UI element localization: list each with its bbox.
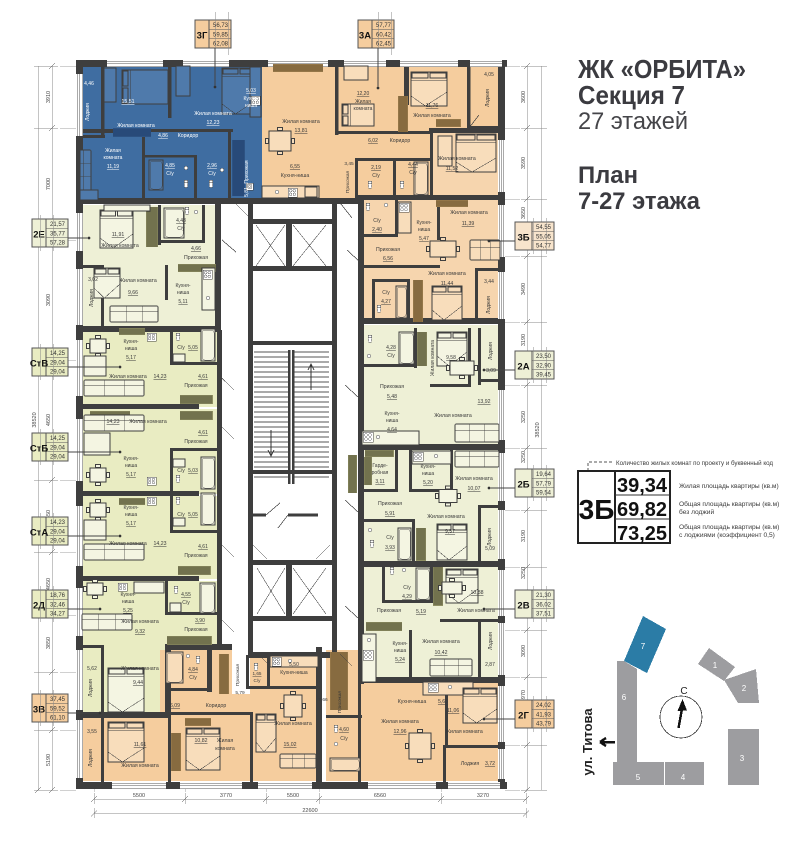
svg-text:3250: 3250 — [521, 411, 527, 423]
svg-text:15,02: 15,02 — [284, 742, 297, 748]
svg-text:Лоджия: Лоджия — [88, 749, 94, 767]
svg-text:Жилая комната: Жилая комната — [282, 119, 320, 125]
svg-text:62,45: 62,45 — [376, 42, 392, 48]
svg-text:ул. Титова: ул. Титова — [580, 708, 595, 776]
svg-text:Коридор: Коридор — [390, 138, 411, 144]
svg-text:С/у: С/у — [409, 170, 417, 176]
svg-text:С/у: С/у — [403, 585, 411, 591]
svg-text:3250: 3250 — [521, 567, 527, 579]
svg-text:3,72: 3,72 — [485, 761, 495, 767]
svg-text:32,90: 32,90 — [536, 363, 552, 369]
svg-text:5: 5 — [636, 773, 641, 782]
svg-text:5190: 5190 — [46, 754, 52, 766]
svg-text:29,04: 29,04 — [50, 370, 66, 376]
svg-text:Жилая: Жилая — [217, 738, 234, 744]
svg-text:14,23: 14,23 — [154, 374, 167, 380]
svg-text:ниша: ниша — [125, 463, 138, 469]
svg-text:Жилая: Жилая — [355, 99, 371, 105]
svg-text:6,02: 6,02 — [368, 138, 378, 144]
svg-text:Прихожая: Прихожая — [345, 170, 351, 193]
svg-text:2Г: 2Г — [518, 711, 529, 722]
svg-text:5,03: 5,03 — [188, 468, 198, 474]
svg-text:Лоджия: Лоджия — [85, 103, 91, 121]
svg-text:Жилая комната: Жилая комната — [117, 123, 155, 129]
svg-text:комната: комната — [354, 106, 373, 112]
svg-text:3,55: 3,55 — [87, 729, 97, 735]
svg-text:61,10: 61,10 — [50, 716, 66, 722]
svg-text:14,25: 14,25 — [50, 436, 66, 442]
svg-text:73,25: 73,25 — [617, 523, 667, 545]
svg-text:6,56: 6,56 — [383, 256, 393, 262]
svg-text:Кухня-: Кухня- — [123, 456, 138, 462]
svg-text:Кухня-: Кухня- — [392, 641, 407, 647]
svg-text:4,29: 4,29 — [402, 594, 412, 600]
svg-text:Жилая: Жилая — [105, 148, 121, 154]
svg-text:Лоджия: Лоджия — [89, 289, 95, 307]
svg-text:34,27: 34,27 — [50, 612, 66, 618]
svg-text:Кухня-: Кухня- — [123, 505, 138, 511]
svg-text:5,11: 5,11 — [178, 299, 188, 305]
svg-text:38520: 38520 — [32, 412, 38, 427]
svg-text:ниша: ниша — [125, 346, 138, 352]
svg-text:С/у: С/у — [340, 736, 348, 742]
svg-text:5,50: 5,50 — [289, 662, 299, 668]
svg-text:39,34: 39,34 — [617, 475, 668, 497]
svg-text:5,91: 5,91 — [385, 511, 395, 517]
svg-text:12,96: 12,96 — [394, 729, 407, 735]
svg-text:13,92: 13,92 — [478, 399, 491, 405]
svg-text:3850: 3850 — [46, 637, 52, 649]
svg-text:4,60: 4,60 — [339, 727, 349, 733]
svg-text:Жилая комната: Жилая комната — [121, 619, 159, 625]
svg-text:с лоджиями (коэффициент 0,5): с лоджиями (коэффициент 0,5) — [679, 532, 775, 539]
svg-text:4,05: 4,05 — [484, 72, 494, 78]
svg-text:Секция 7: Секция 7 — [578, 80, 685, 110]
svg-text:3,45: 3,45 — [344, 161, 354, 167]
svg-text:5,81: 5,81 — [244, 187, 250, 197]
svg-text:27 этажей: 27 этажей — [578, 108, 688, 135]
svg-text:2Д: 2Д — [33, 601, 45, 612]
svg-text:15,51: 15,51 — [122, 99, 135, 105]
svg-text:41,93: 41,93 — [536, 712, 552, 718]
svg-text:Кухня-: Кухня- — [420, 464, 435, 470]
svg-text:Жилая комната: Жилая комната — [450, 210, 488, 216]
svg-text:11,19: 11,19 — [107, 164, 119, 170]
svg-text:14,23: 14,23 — [50, 520, 66, 526]
svg-text:3490: 3490 — [521, 283, 527, 295]
svg-text:21,57: 21,57 — [50, 222, 66, 228]
svg-text:План: План — [578, 162, 638, 189]
svg-text:4,66: 4,66 — [191, 246, 201, 252]
svg-text:С/у: С/у — [177, 345, 185, 351]
svg-text:Кухня-: Кухня- — [384, 411, 399, 417]
svg-text:СтБ: СтБ — [30, 444, 49, 455]
svg-text:11,91: 11,91 — [112, 232, 125, 238]
svg-text:4,44: 4,44 — [408, 162, 418, 168]
svg-text:Жилая комната: Жилая комната — [121, 763, 159, 769]
svg-text:57,77: 57,77 — [376, 23, 392, 29]
svg-text:Жилая комната: Жилая комната — [119, 278, 157, 284]
svg-text:3,11: 3,11 — [375, 479, 385, 485]
svg-text:23,50: 23,50 — [536, 354, 552, 360]
svg-text:4650: 4650 — [46, 578, 52, 590]
svg-text:3Б: 3Б — [517, 233, 529, 244]
svg-text:С/у: С/у — [208, 171, 216, 177]
svg-text:59,52: 59,52 — [50, 706, 66, 712]
svg-text:Кухня-: Кухня- — [120, 592, 135, 598]
svg-text:С: С — [680, 686, 687, 697]
svg-text:Лоджия: Лоджия — [488, 632, 494, 650]
svg-text:Кухня-ниша: Кухня-ниша — [280, 670, 308, 676]
svg-text:5,17: 5,17 — [126, 521, 136, 527]
svg-text:Кухня-ниша: Кухня-ниша — [398, 699, 427, 705]
svg-text:С/у: С/у — [373, 218, 381, 224]
svg-text:7-27 этажа: 7-27 этажа — [578, 188, 701, 215]
svg-text:24,02: 24,02 — [536, 703, 552, 709]
svg-text:3Г: 3Г — [197, 31, 208, 42]
svg-text:3090: 3090 — [46, 294, 52, 306]
svg-text:2В: 2В — [517, 601, 529, 612]
svg-text:Жилая комната: Жилая комната — [101, 243, 139, 249]
svg-text:5,09: 5,09 — [485, 546, 495, 552]
svg-text:14,23: 14,23 — [107, 419, 120, 425]
svg-text:5,20: 5,20 — [423, 480, 433, 486]
svg-text:5,17: 5,17 — [126, 472, 136, 478]
svg-text:36,02: 36,02 — [536, 602, 552, 608]
svg-text:Жилая комната: Жилая комната — [109, 541, 147, 547]
svg-text:Прихожая: Прихожая — [184, 627, 207, 633]
svg-text:Прихожая: Прихожая — [378, 501, 402, 507]
svg-text:Прихожая: Прихожая — [235, 663, 241, 686]
svg-text:3650: 3650 — [521, 207, 527, 219]
svg-text:С/у: С/у — [387, 353, 395, 359]
svg-text:ниша: ниша — [418, 227, 431, 233]
svg-text:3250: 3250 — [521, 451, 527, 463]
svg-text:Жилая комната: Жилая комната — [194, 111, 232, 117]
svg-text:6560: 6560 — [374, 793, 386, 799]
svg-text:2Е: 2Е — [33, 230, 45, 241]
svg-text:ниша: ниша — [422, 471, 435, 477]
svg-text:Жилая комната: Жилая комната — [274, 721, 312, 727]
svg-text:9,58: 9,58 — [446, 355, 456, 361]
svg-text:4,64: 4,64 — [387, 427, 397, 433]
svg-text:4,84: 4,84 — [188, 667, 198, 673]
svg-text:38520: 38520 — [535, 422, 541, 437]
svg-text:7: 7 — [641, 642, 646, 651]
svg-text:32,46: 32,46 — [50, 602, 66, 608]
svg-text:Прихожая: Прихожая — [244, 160, 250, 183]
svg-text:7,66: 7,66 — [318, 697, 328, 703]
svg-text:Жилая комната: Жилая комната — [422, 639, 460, 645]
svg-text:Жилая комната: Жилая комната — [445, 729, 483, 735]
svg-text:9,57: 9,57 — [445, 529, 455, 535]
svg-text:12,20: 12,20 — [357, 91, 370, 97]
svg-text:5,05: 5,05 — [188, 512, 198, 518]
svg-text:Кухня-: Кухня- — [416, 220, 431, 226]
svg-text:Прихожая: Прихожая — [380, 384, 404, 390]
svg-text:18,76: 18,76 — [50, 593, 66, 599]
svg-text:2: 2 — [742, 684, 747, 693]
svg-text:57,79: 57,79 — [536, 481, 552, 487]
svg-text:Кухня-ниша: Кухня-ниша — [281, 173, 310, 179]
svg-text:3,93: 3,93 — [385, 545, 395, 551]
svg-text:Жилая комната: Жилая комната — [430, 340, 436, 376]
svg-text:3,02: 3,02 — [88, 277, 98, 283]
svg-text:21,30: 21,30 — [536, 593, 552, 599]
svg-text:29,04: 29,04 — [50, 539, 66, 545]
svg-text:Общая площадь квартиры (кв.м): Общая площадь квартиры (кв.м) — [679, 523, 779, 531]
svg-text:ниша: ниша — [125, 512, 138, 518]
svg-text:С/у: С/у — [177, 226, 185, 232]
svg-text:ниша: ниша — [122, 599, 135, 605]
svg-text:5,62: 5,62 — [87, 666, 97, 672]
svg-text:11,61: 11,61 — [134, 742, 147, 748]
svg-text:Количество жилых комнат по про: Количество жилых комнат по проекту и бук… — [616, 460, 773, 467]
svg-text:11,76: 11,76 — [426, 103, 439, 109]
svg-text:Кухня-: Кухня- — [123, 339, 138, 345]
svg-text:Жилая комната: Жилая комната — [455, 476, 493, 482]
svg-text:Жилая комната: Жилая комната — [434, 413, 472, 419]
svg-text:19,64: 19,64 — [536, 472, 552, 478]
svg-text:29,04: 29,04 — [50, 360, 66, 366]
svg-text:12,23: 12,23 — [207, 120, 220, 126]
svg-text:ниша: ниша — [394, 648, 407, 654]
svg-text:Прихожая: Прихожая — [376, 247, 400, 253]
svg-text:Лоджия: Лоджия — [488, 342, 494, 360]
svg-text:54,77: 54,77 — [536, 244, 552, 250]
svg-text:Прихожая: Прихожая — [184, 439, 207, 445]
svg-text:Лоджия: Лоджия — [487, 528, 493, 546]
svg-text:29,04: 29,04 — [50, 529, 66, 535]
svg-text:9,32: 9,32 — [135, 629, 145, 635]
svg-text:59,54: 59,54 — [536, 491, 552, 497]
svg-text:4,61: 4,61 — [198, 374, 208, 380]
svg-text:2А: 2А — [517, 362, 529, 373]
svg-text:4,28: 4,28 — [386, 345, 396, 351]
svg-text:С/у: С/у — [166, 171, 174, 177]
svg-text:14,23: 14,23 — [154, 541, 167, 547]
svg-text:1: 1 — [713, 661, 718, 670]
svg-text:Жилая комната: Жилая комната — [129, 419, 167, 425]
svg-text:11,44: 11,44 — [441, 281, 454, 287]
svg-text:Коридор: Коридор — [206, 703, 227, 709]
svg-text:ниша: ниша — [386, 418, 399, 424]
svg-text:3,09: 3,09 — [486, 368, 496, 374]
svg-text:4: 4 — [681, 773, 686, 782]
svg-text:6,55: 6,55 — [290, 164, 300, 170]
svg-text:2,87: 2,87 — [485, 662, 495, 668]
svg-text:3770: 3770 — [220, 793, 232, 799]
svg-text:10,42: 10,42 — [435, 650, 448, 656]
svg-text:56,73: 56,73 — [213, 23, 229, 29]
svg-text:Прихожая: Прихожая — [377, 608, 401, 614]
svg-text:4650: 4650 — [46, 414, 52, 426]
svg-text:3,90: 3,90 — [195, 618, 205, 624]
svg-text:5,05: 5,05 — [188, 345, 198, 351]
svg-text:59,85: 59,85 — [213, 32, 229, 38]
svg-text:2,19: 2,19 — [371, 165, 381, 171]
svg-text:С/у: С/у — [177, 468, 185, 474]
svg-text:3Б: 3Б — [579, 494, 615, 525]
svg-text:5,65: 5,65 — [438, 699, 448, 705]
svg-text:Жилая комната: Жилая комната — [427, 514, 465, 520]
svg-text:5500: 5500 — [133, 793, 145, 799]
svg-text:Жилая комната: Жилая комната — [381, 719, 419, 725]
svg-text:ниша: ниша — [245, 103, 258, 109]
svg-text:1,65: 1,65 — [253, 671, 262, 676]
svg-text:С/у: С/у — [182, 600, 190, 606]
svg-text:Прихожая: Прихожая — [184, 553, 207, 559]
svg-text:60,42: 60,42 — [376, 32, 392, 38]
svg-text:5,03: 5,03 — [246, 88, 256, 94]
svg-text:Лоджия: Лоджия — [461, 761, 480, 767]
svg-text:29,04: 29,04 — [50, 445, 66, 451]
svg-text:5500: 5500 — [287, 793, 299, 799]
svg-text:14,25: 14,25 — [50, 351, 66, 357]
svg-text:4,43: 4,43 — [176, 218, 186, 224]
svg-text:22600: 22600 — [302, 808, 317, 814]
svg-text:4,46: 4,46 — [84, 81, 94, 87]
svg-text:5,24: 5,24 — [395, 657, 405, 663]
svg-text:Прихожая: Прихожая — [184, 255, 208, 261]
svg-text:6: 6 — [622, 693, 627, 702]
svg-text:11,39: 11,39 — [462, 221, 475, 227]
svg-text:С/у: С/у — [386, 535, 394, 541]
svg-text:4,61: 4,61 — [198, 430, 208, 436]
svg-text:СтА: СтА — [30, 528, 49, 539]
svg-text:4,86: 4,86 — [158, 133, 168, 139]
svg-text:С/у: С/у — [382, 290, 390, 296]
svg-text:3590: 3590 — [521, 157, 527, 169]
svg-text:11,52: 11,52 — [446, 166, 459, 172]
svg-text:комната: комната — [104, 155, 123, 161]
svg-text:10,88: 10,88 — [471, 590, 484, 596]
svg-text:Жилая комната: Жилая комната — [413, 113, 451, 119]
svg-text:Жилая комната: Жилая комната — [121, 666, 159, 672]
svg-text:55,05: 55,05 — [536, 234, 552, 240]
svg-text:10,82: 10,82 — [195, 738, 208, 744]
svg-text:3В: 3В — [33, 705, 45, 716]
svg-text:2,96: 2,96 — [207, 163, 217, 169]
svg-text:3090: 3090 — [521, 645, 527, 657]
svg-text:11,06: 11,06 — [447, 708, 460, 714]
svg-text:Лоджия: Лоджия — [486, 296, 492, 314]
svg-text:35,77: 35,77 — [50, 231, 66, 237]
svg-text:3270: 3270 — [477, 793, 489, 799]
svg-text:Коридор: Коридор — [178, 133, 199, 139]
svg-text:3190: 3190 — [521, 334, 527, 346]
svg-text:3910: 3910 — [46, 91, 52, 103]
svg-text:29,04: 29,04 — [50, 455, 66, 461]
svg-text:Прихожая: Прихожая — [184, 383, 207, 389]
svg-text:5,48: 5,48 — [387, 394, 397, 400]
svg-text:СтВ: СтВ — [30, 359, 49, 370]
svg-text:37,45: 37,45 — [50, 697, 66, 703]
svg-text:2Б: 2Б — [517, 480, 529, 491]
svg-text:Жилая комната: Жилая комната — [438, 156, 476, 162]
svg-text:62,08: 62,08 — [213, 42, 229, 48]
svg-text:Жилая площадь квартиры (кв.м): Жилая площадь квартиры (кв.м) — [679, 483, 779, 490]
svg-text:54,55: 54,55 — [536, 225, 552, 231]
svg-text:37,51: 37,51 — [536, 612, 552, 618]
svg-text:С/у: С/у — [189, 675, 197, 681]
svg-text:Общая площадь квартиры (кв.м): Общая площадь квартиры (кв.м) — [679, 500, 779, 508]
svg-text:3600: 3600 — [521, 91, 527, 103]
svg-text:5,25: 5,25 — [123, 608, 133, 614]
svg-text:43,79: 43,79 — [536, 722, 552, 728]
svg-text:9,66: 9,66 — [128, 290, 138, 296]
svg-text:2,40: 2,40 — [372, 227, 382, 233]
svg-text:Жилая комната: Жилая комната — [109, 374, 147, 380]
svg-text:57,28: 57,28 — [50, 241, 66, 247]
svg-text:10,07: 10,07 — [468, 486, 481, 492]
svg-text:С/у: С/у — [177, 512, 185, 518]
svg-text:Жилая комната: Жилая комната — [428, 271, 466, 277]
svg-text:Лоджия: Лоджия — [88, 679, 94, 697]
svg-text:6,09: 6,09 — [170, 703, 180, 709]
svg-text:Лоджия: Лоджия — [485, 89, 491, 107]
svg-text:13,81: 13,81 — [295, 128, 308, 134]
svg-text:4,55: 4,55 — [181, 592, 191, 598]
svg-text:3,44: 3,44 — [484, 279, 494, 285]
svg-text:5,17: 5,17 — [126, 355, 136, 361]
svg-text:3А: 3А — [359, 31, 371, 42]
svg-text:4,61: 4,61 — [198, 544, 208, 550]
svg-text:5,19: 5,19 — [416, 609, 426, 615]
svg-text:Прихожая: Прихожая — [337, 690, 343, 713]
svg-text:комната: комната — [215, 746, 235, 752]
svg-text:робная: робная — [372, 470, 389, 476]
svg-text:69,82: 69,82 — [617, 499, 667, 521]
svg-text:39,45: 39,45 — [536, 373, 552, 379]
svg-text:С/у: С/у — [372, 173, 380, 179]
svg-text:4,27: 4,27 — [381, 299, 391, 305]
svg-text:ниша: ниша — [177, 290, 190, 296]
svg-text:4,85: 4,85 — [165, 163, 175, 169]
svg-text:3: 3 — [740, 754, 745, 763]
svg-text:С/у: С/у — [254, 678, 262, 683]
svg-text:9,44: 9,44 — [133, 680, 143, 686]
svg-text:Кухня-: Кухня- — [175, 283, 190, 289]
svg-text:5,79: 5,79 — [235, 690, 245, 696]
svg-text:без лоджий: без лоджий — [679, 508, 714, 516]
svg-text:Кухня-: Кухня- — [243, 96, 258, 102]
svg-text:5,47: 5,47 — [419, 236, 429, 242]
svg-text:3190: 3190 — [521, 530, 527, 542]
svg-text:Гарде-: Гарде- — [372, 463, 388, 469]
svg-text:7000: 7000 — [46, 178, 52, 190]
